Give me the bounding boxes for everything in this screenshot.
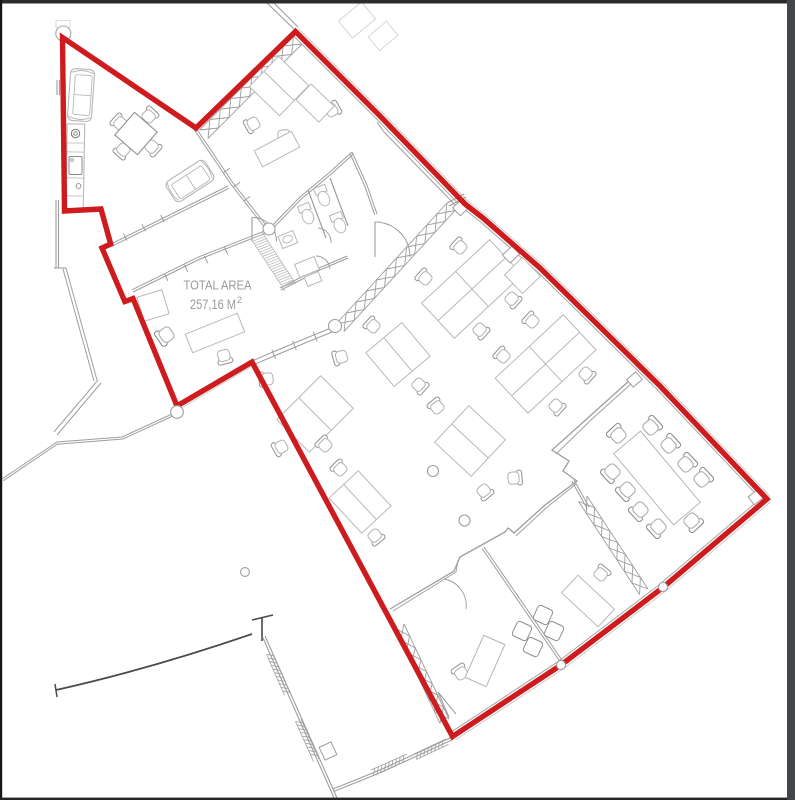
svg-text:TOTAL AREA: TOTAL AREA	[184, 278, 252, 293]
svg-text:257,16 M: 257,16 M	[190, 296, 236, 312]
svg-text:2: 2	[237, 295, 242, 305]
